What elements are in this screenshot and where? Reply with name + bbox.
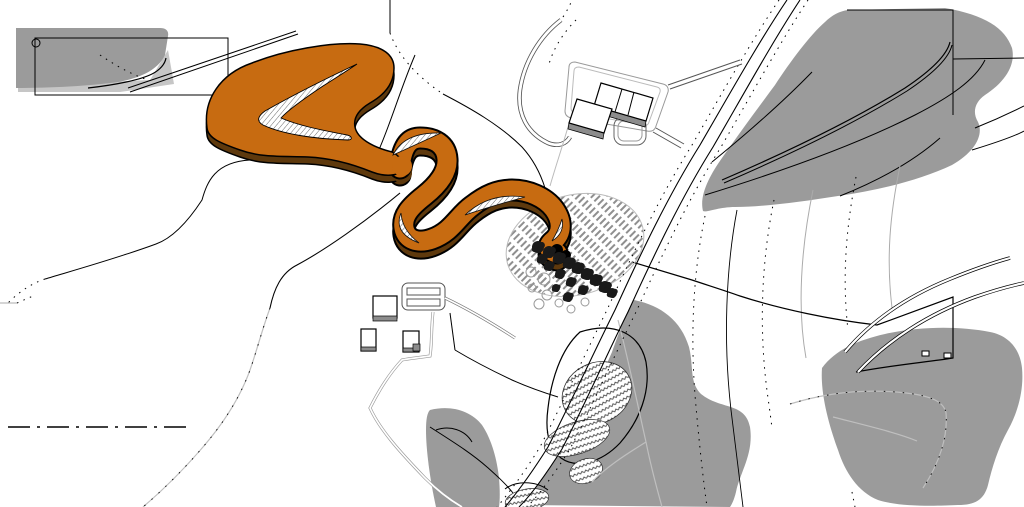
conifer-symbol (567, 298, 572, 303)
conifer-symbol (605, 282, 612, 289)
barn-2 (361, 329, 376, 351)
conifer-symbol (568, 293, 574, 299)
conifer-symbol (556, 285, 560, 289)
barn-1-footprint (373, 296, 397, 318)
conifer-symbol (538, 242, 545, 249)
barn-2-shadow (361, 347, 376, 351)
conifer-symbol (611, 294, 616, 299)
site-plan-canvas (0, 0, 1024, 507)
conifer-symbol (612, 289, 618, 295)
conifer-symbol (549, 262, 555, 268)
conifer-symbol (583, 286, 589, 292)
conifer-symbol (559, 275, 564, 280)
conifer-symbol (548, 253, 553, 258)
conifer-symbol (555, 288, 559, 292)
conifer-symbol (548, 267, 553, 272)
conifer-symbol (570, 283, 575, 288)
survey-mark (922, 351, 929, 356)
conifer-symbol (559, 253, 566, 260)
conifer-symbol (542, 255, 548, 261)
conifer-symbol (537, 248, 542, 253)
conifer-symbol (549, 247, 556, 254)
conifer-symbol (595, 281, 600, 286)
conifer-symbol (560, 270, 566, 276)
survey-mark (944, 353, 951, 358)
conifer-symbol (578, 263, 585, 270)
barn-3-shadow (403, 348, 414, 352)
barn-3-annex (413, 344, 420, 351)
conifer-symbol (571, 278, 577, 284)
conifer-symbol (587, 269, 594, 276)
barn-1-shadow (373, 316, 397, 321)
barn-3 (403, 331, 420, 352)
conifer-symbol (596, 275, 603, 282)
conifer-symbol (558, 259, 563, 264)
conifer-symbol (541, 260, 546, 265)
junction-patch (392, 156, 412, 176)
conifer-symbol (582, 291, 587, 296)
site-plan-drawing (0, 0, 1024, 507)
barn-1 (373, 296, 397, 321)
